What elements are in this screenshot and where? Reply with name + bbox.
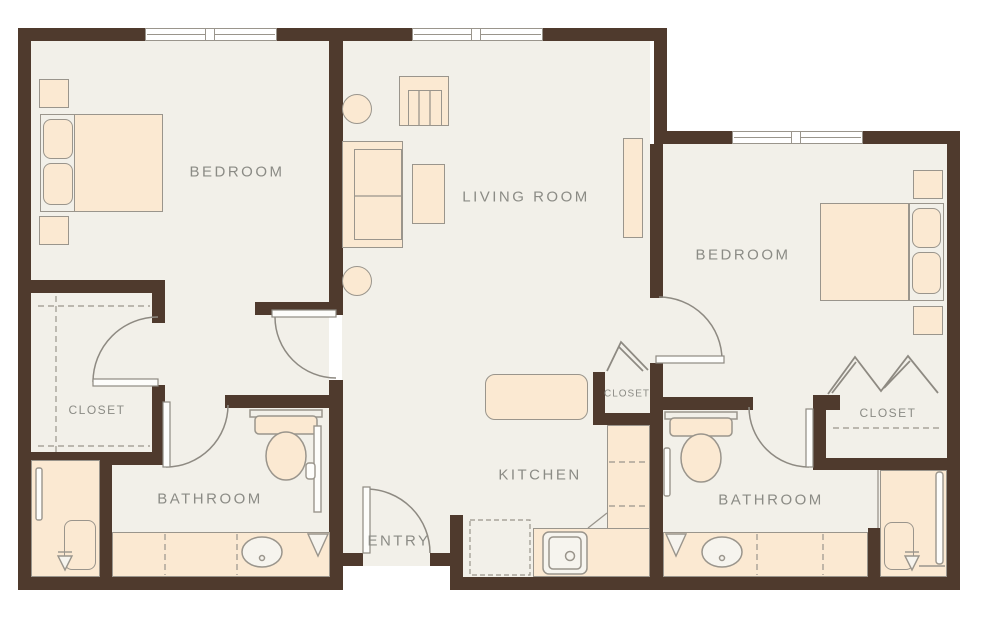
wall-living-right xyxy=(654,28,667,144)
wall-entry-nook-right xyxy=(430,553,450,566)
room-label-bedroom-right: BEDROOM xyxy=(695,247,790,264)
side-table-round xyxy=(342,94,372,124)
wall-entry-nook-left xyxy=(343,553,363,566)
bed xyxy=(74,114,163,212)
wall-bottom-right xyxy=(450,577,960,590)
wall-closet-left-top xyxy=(18,280,165,293)
vanity-right xyxy=(663,532,868,577)
pillow xyxy=(43,119,73,159)
nightstand xyxy=(39,79,69,108)
wall-shower-left-divider xyxy=(100,460,112,577)
window-mullion xyxy=(791,131,801,144)
floor-plan: BEDROOM LIVING ROOM BEDROOM CLOSET CLOSE… xyxy=(0,0,989,618)
room-label-closet-left: CLOSET xyxy=(68,403,125,417)
room-label-bathroom-left: BATHROOM xyxy=(157,491,263,508)
wall-right-unit-top-1 xyxy=(654,131,732,144)
room-label-kitchen: KITCHEN xyxy=(498,467,581,484)
wall-bottom-left xyxy=(18,577,343,590)
wall-right-unit-top-2 xyxy=(863,131,960,144)
wall-closet-left-stub-upper xyxy=(152,280,165,323)
room-label-bedroom-left: BEDROOM xyxy=(189,164,284,181)
wall-kitchen-left-stub xyxy=(450,515,463,590)
wall-left-center-lower xyxy=(329,380,343,577)
wall-outer-left xyxy=(18,28,31,590)
wall-bathroom-right-top xyxy=(650,397,753,410)
wall-left-center-upper xyxy=(329,28,343,315)
room-label-entry: ENTRY xyxy=(367,533,430,550)
coffee-table xyxy=(412,164,445,224)
pillow xyxy=(912,208,941,248)
wall-left-hall xyxy=(255,302,342,315)
wall-closet-center-bottom xyxy=(593,413,660,425)
window-mullion xyxy=(471,28,481,41)
console-table xyxy=(623,138,643,238)
nightstand xyxy=(913,306,943,335)
sofa-cushions xyxy=(354,149,402,240)
wall-outer-right xyxy=(947,131,960,590)
wall-top-1 xyxy=(18,28,145,41)
shower-bench xyxy=(64,520,96,570)
room-label-closet-center: CLOSET xyxy=(604,389,650,400)
room-label-living-room: LIVING ROOM xyxy=(462,189,590,206)
nightstand xyxy=(913,170,943,199)
kitchen-counter-right xyxy=(607,425,650,529)
window-mullion xyxy=(205,28,215,41)
room-label-closet-right: CLOSET xyxy=(859,406,916,420)
wall-bathroom-left-top xyxy=(225,395,342,408)
wall-top-2 xyxy=(277,28,412,41)
kitchen-island xyxy=(485,374,588,420)
floor-center-unit xyxy=(342,41,650,577)
wall-shower-right-divider xyxy=(868,528,880,577)
floor-doorway-right-bedroom xyxy=(650,298,663,363)
room-label-bathroom-right: BATHROOM xyxy=(718,492,824,509)
side-table-round xyxy=(342,266,372,296)
wall-closet-right-bottom xyxy=(813,458,947,470)
exterior-mask xyxy=(343,566,450,590)
wall-top-3 xyxy=(543,28,667,41)
floor-entry-threshold xyxy=(363,553,430,566)
wall-right-unit-left-upper xyxy=(650,144,663,298)
shower-bench xyxy=(884,522,914,570)
pillow xyxy=(43,163,73,205)
bed xyxy=(820,203,909,301)
kitchen-counter-bottom xyxy=(533,528,650,577)
pillow xyxy=(912,252,941,294)
tv xyxy=(408,90,442,126)
nightstand xyxy=(39,216,69,245)
vanity-left xyxy=(112,532,330,577)
